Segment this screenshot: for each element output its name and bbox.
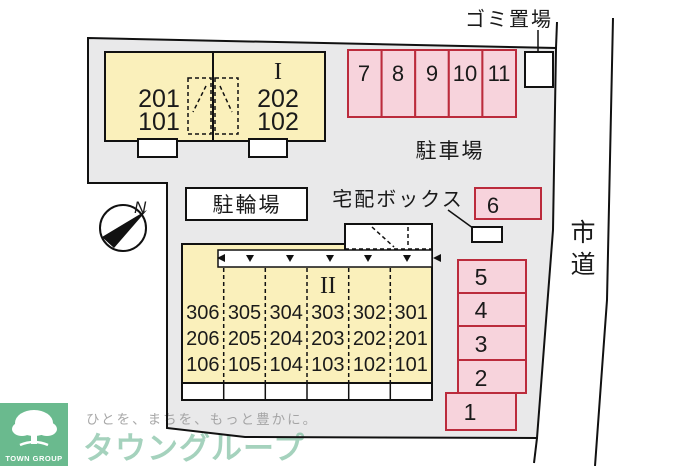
site-plan-map: N I 201 101 202 102 ゴミ置場	[0, 0, 700, 466]
stall-number: 10	[453, 61, 477, 86]
bicycle-parking-label: 駐輪場	[213, 194, 282, 217]
room-number: 201	[395, 328, 428, 350]
parking-stall	[458, 326, 526, 360]
stall-number: 6	[487, 193, 499, 218]
stall-number: 7	[358, 61, 370, 86]
garbage-label: ゴミ置場	[465, 8, 553, 31]
north-label: N	[134, 198, 147, 217]
parking-stall	[475, 188, 541, 219]
building-2-name: II	[320, 273, 336, 299]
parking-row-top: 7 8 9 10 11	[348, 50, 516, 117]
stall-number: 9	[426, 61, 438, 86]
parking-lot-label: 駐車場	[416, 140, 485, 163]
stall-number: 8	[392, 61, 404, 86]
room-number: 101	[395, 354, 428, 376]
room-number: 302	[353, 302, 386, 324]
building-2: II 306 305 304 303 302 301 206 205 204 2…	[182, 224, 441, 400]
room-number: 305	[228, 302, 261, 324]
parking-stall	[446, 393, 516, 430]
entrance-porch	[138, 139, 177, 157]
stall-number: 5	[475, 264, 488, 290]
stairwell-box	[345, 224, 432, 250]
entrance-porch	[249, 139, 287, 157]
delivery-box-label: 宅配ボックス	[332, 188, 463, 211]
room-number: 301	[395, 302, 428, 324]
parking-stall	[458, 293, 526, 326]
stall-number: 4	[475, 297, 488, 323]
unit-number: 101	[138, 108, 180, 136]
building-1: I 201 101 202 102	[105, 52, 325, 157]
stall-number: 1	[464, 399, 477, 425]
stall-number: 3	[475, 331, 488, 357]
room-number: 202	[353, 328, 386, 350]
site-plan-page: N I 201 101 202 102 ゴミ置場	[0, 0, 700, 466]
stall-number: 2	[475, 365, 488, 391]
room-number: 306	[186, 302, 219, 324]
parking-stall-6: 6	[475, 188, 541, 219]
room-number: 106	[186, 354, 219, 376]
room-number: 205	[228, 328, 261, 350]
room-number: 203	[311, 328, 344, 350]
room-number: 304	[270, 302, 303, 324]
room-number: 104	[270, 354, 303, 376]
room-number: 206	[186, 328, 219, 350]
garbage-box	[525, 52, 553, 87]
bicycle-parking: 駐輪場	[186, 188, 307, 220]
room-number: 204	[270, 328, 303, 350]
room-number: 303	[311, 302, 344, 324]
room-number: 102	[353, 354, 386, 376]
compass: N	[100, 198, 147, 251]
parking-stall	[458, 360, 526, 393]
unit-number: 102	[257, 108, 299, 136]
room-number: 105	[228, 354, 261, 376]
parking-column-right: 5 4 3 2 1	[446, 260, 526, 430]
parking-stall	[458, 260, 526, 293]
delivery-box-unit	[472, 227, 502, 242]
stall-number: 11	[488, 61, 511, 86]
room-number: 103	[311, 354, 344, 376]
building-1-name: I	[274, 59, 282, 85]
